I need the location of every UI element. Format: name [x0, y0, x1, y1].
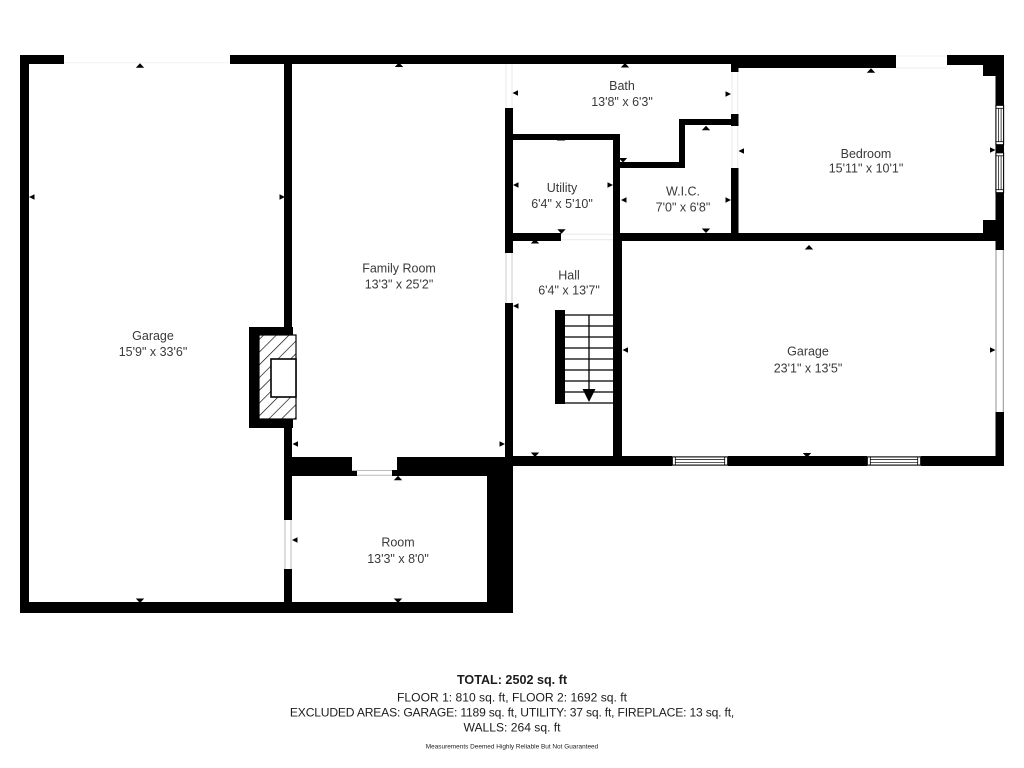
svg-text:WALLS: 264 sq. ft: WALLS: 264 sq. ft [463, 720, 561, 734]
svg-text:Bedroom: Bedroom [841, 147, 892, 161]
svg-text:6'4" x 5'10": 6'4" x 5'10" [531, 197, 593, 211]
svg-text:15'11" x 10'1": 15'11" x 10'1" [829, 162, 904, 176]
svg-text:Family Room: Family Room [362, 262, 436, 276]
svg-text:TOTAL: 2502 sq. ft: TOTAL: 2502 sq. ft [457, 673, 568, 687]
svg-text:Measurements Deemed Highly Rel: Measurements Deemed Highly Reliable But … [426, 744, 599, 751]
svg-text:Garage: Garage [787, 345, 829, 359]
svg-text:EXCLUDED AREAS: GARAGE: 1189 s: EXCLUDED AREAS: GARAGE: 1189 sq. ft, UTI… [290, 705, 734, 719]
svg-text:13'3" x 8'0": 13'3" x 8'0" [367, 552, 429, 566]
svg-text:Hall: Hall [558, 269, 580, 283]
svg-text:Utility: Utility [547, 181, 578, 195]
svg-text:FLOOR 1: 810 sq. ft, FLOOR 2:: FLOOR 1: 810 sq. ft, FLOOR 2: 1692 sq. f… [397, 690, 628, 704]
svg-text:6'4" x 13'7": 6'4" x 13'7" [538, 284, 600, 298]
svg-text:7'0" x 6'8": 7'0" x 6'8" [656, 201, 711, 215]
svg-text:W.I.C.: W.I.C. [666, 185, 700, 199]
svg-text:13'3" x 25'2": 13'3" x 25'2" [365, 278, 434, 292]
svg-text:Garage: Garage [132, 329, 174, 343]
svg-text:15'9" x 33'6": 15'9" x 33'6" [119, 345, 188, 359]
svg-text:23'1" x 13'5": 23'1" x 13'5" [774, 362, 843, 376]
svg-text:Room: Room [381, 536, 414, 550]
svg-text:13'8" x 6'3": 13'8" x 6'3" [591, 95, 653, 109]
svg-text:Bath: Bath [609, 79, 635, 93]
